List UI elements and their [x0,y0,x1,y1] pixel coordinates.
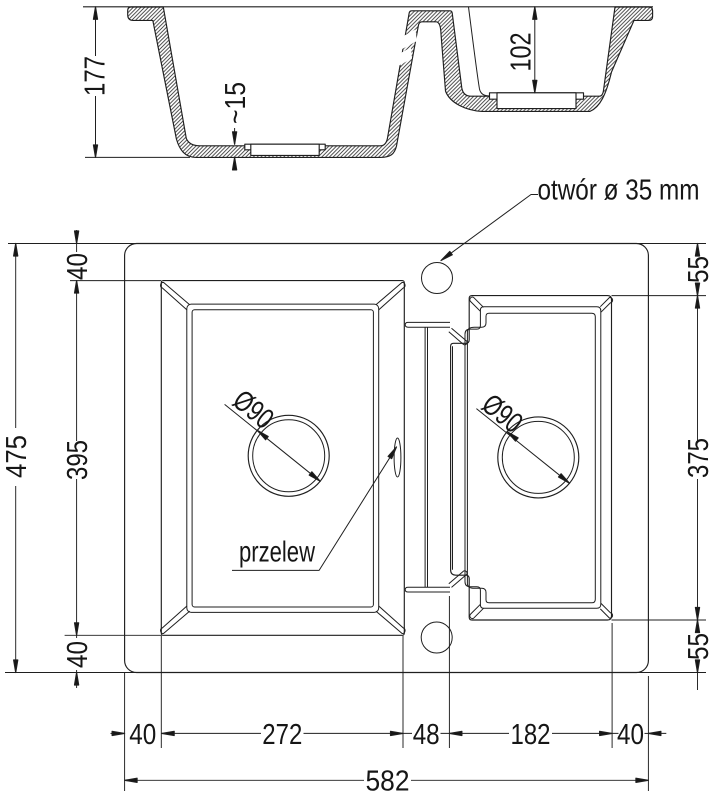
svg-text:40: 40 [62,253,94,280]
svg-text:40: 40 [62,641,94,668]
svg-text:otwór ø 35 mm: otwór ø 35 mm [538,175,700,207]
svg-text:102: 102 [506,33,538,72]
svg-text:40: 40 [617,719,644,751]
svg-text:55: 55 [683,256,715,283]
svg-text:177: 177 [80,56,112,96]
svg-text:272: 272 [262,719,302,751]
svg-text:40: 40 [129,719,156,751]
svg-text:582: 582 [366,766,410,798]
svg-text:~15: ~15 [220,82,252,124]
svg-text:182: 182 [511,719,551,751]
svg-text:395: 395 [62,440,94,480]
svg-text:55: 55 [683,633,715,660]
svg-text:475: 475 [1,435,33,478]
svg-text:48: 48 [413,719,440,751]
svg-text:375: 375 [683,438,715,478]
svg-text:przelew: przelew [239,536,316,568]
